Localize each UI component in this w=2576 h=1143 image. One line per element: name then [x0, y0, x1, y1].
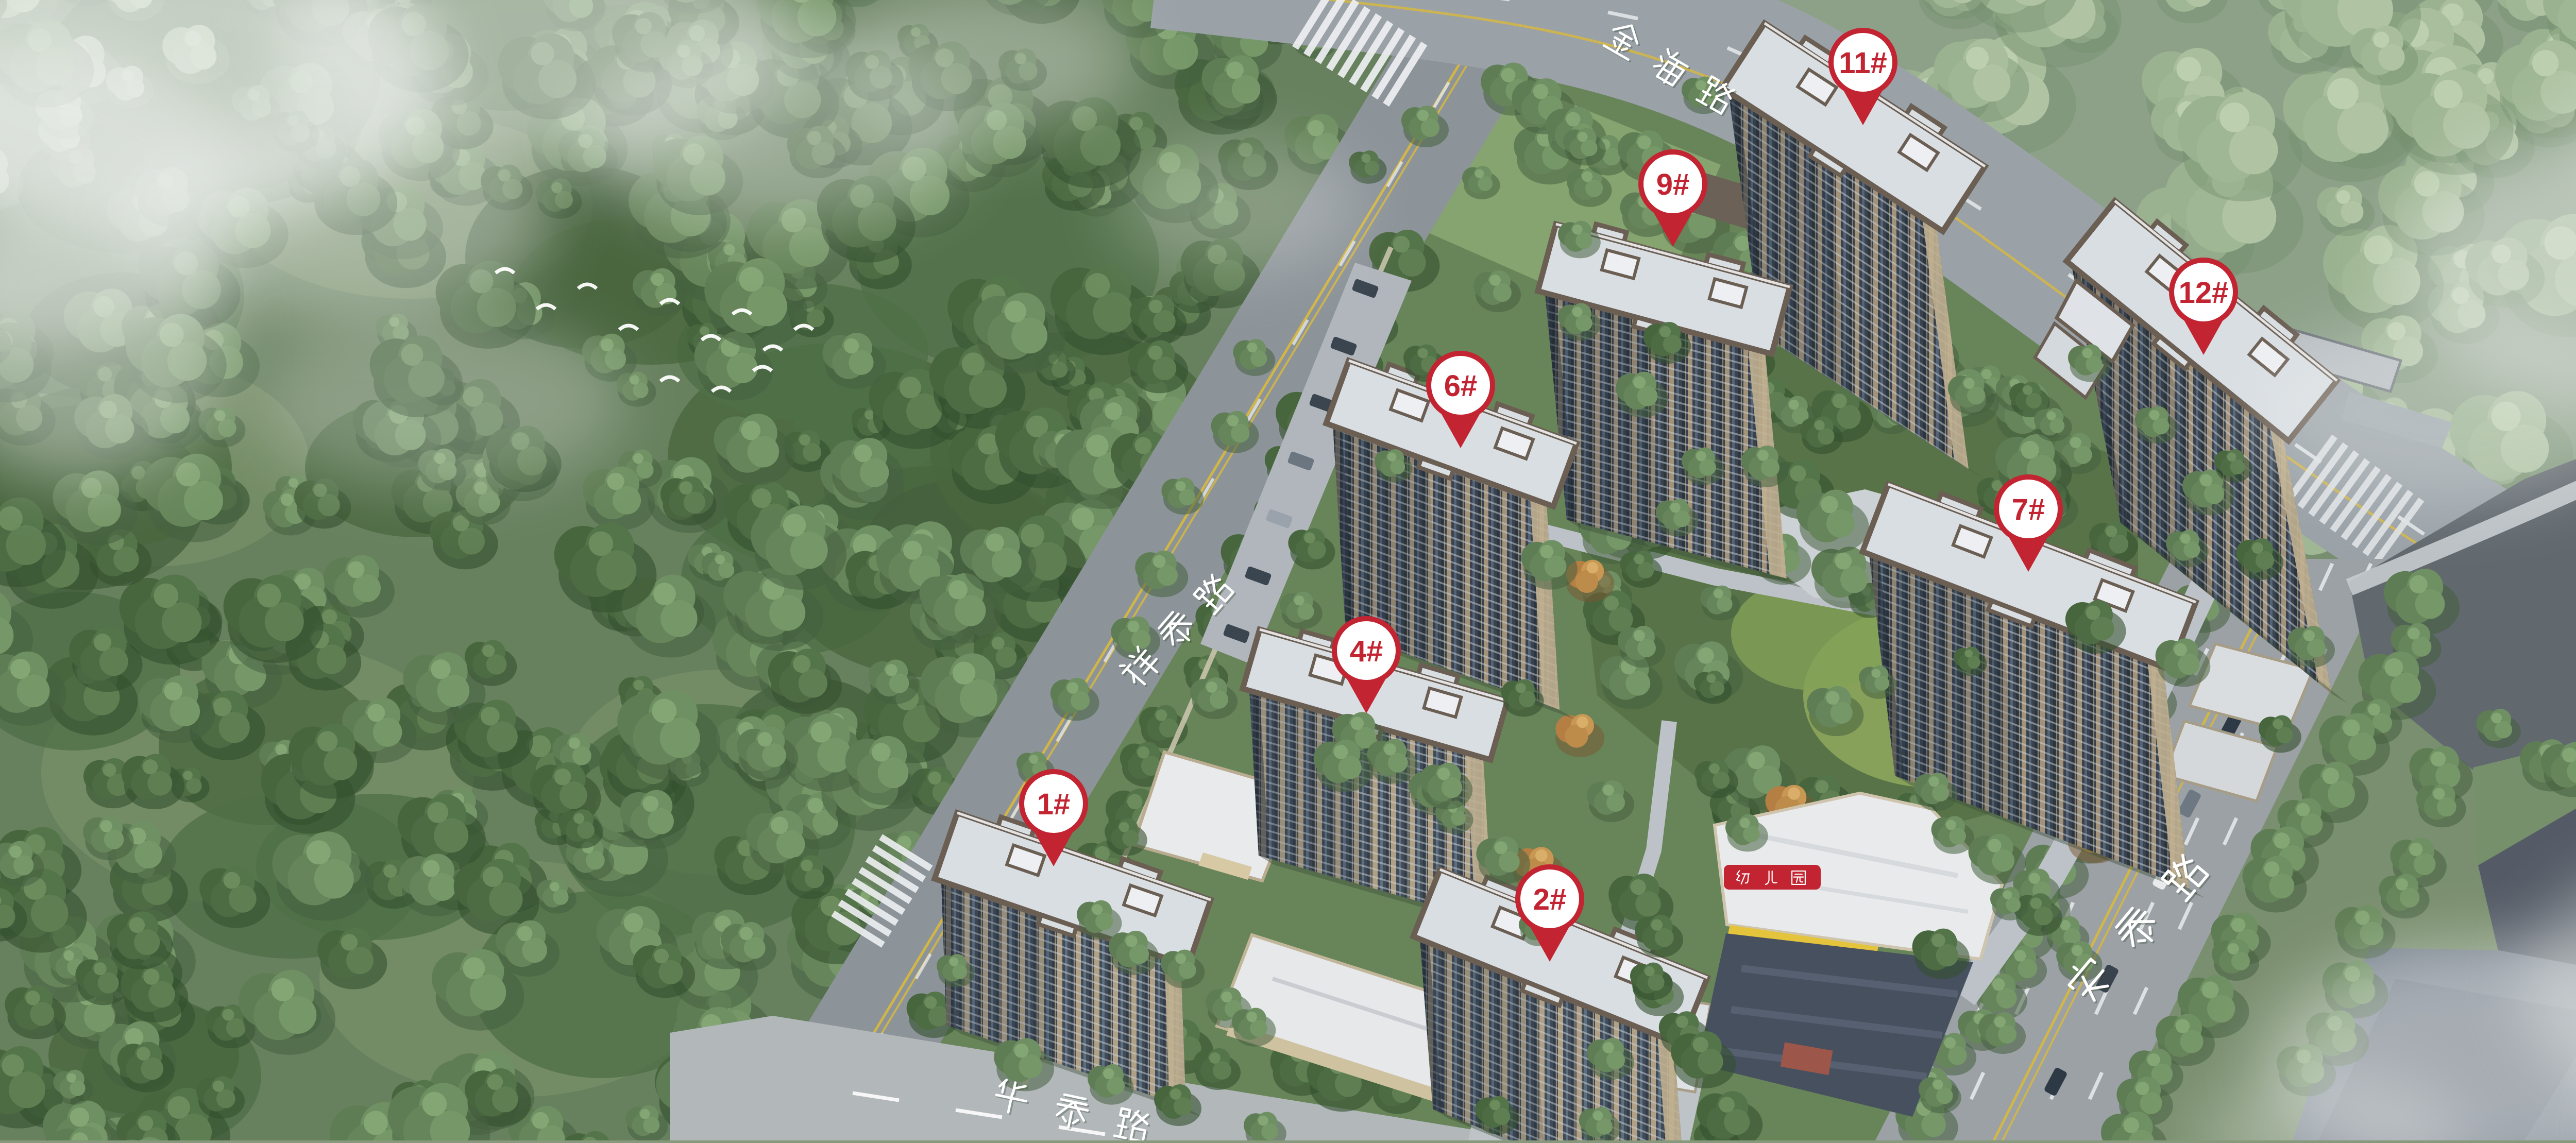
- svg-text:12#: 12#: [2179, 276, 2229, 310]
- svg-text:4#: 4#: [1350, 635, 1383, 668]
- svg-text:1#: 1#: [1037, 788, 1071, 821]
- svg-text:9#: 9#: [1656, 168, 1690, 201]
- svg-text:11#: 11#: [1839, 46, 1887, 80]
- svg-text:2#: 2#: [1533, 883, 1567, 916]
- svg-text:6#: 6#: [1444, 369, 1478, 403]
- svg-text:7#: 7#: [2012, 493, 2045, 526]
